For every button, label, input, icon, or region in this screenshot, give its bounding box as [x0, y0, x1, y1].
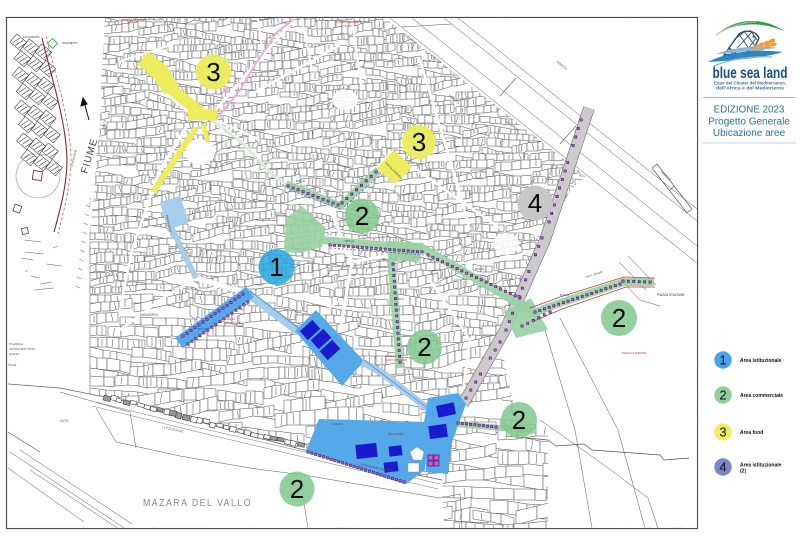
svg-text:SANT ANTONIO: SANT ANTONIO: [385, 358, 408, 362]
svg-text:QUINCI: QUINCI: [9, 352, 20, 356]
svg-text:blue sea land: blue sea land: [713, 65, 788, 82]
svg-text:3: 3: [719, 425, 726, 440]
svg-text:MAZARA DEL VALLO: MAZARA DEL VALLO: [143, 497, 252, 509]
svg-text:2079: 2079: [60, 419, 68, 423]
svg-text:1: 1: [269, 252, 283, 282]
svg-text:BOX 14: BOX 14: [560, 293, 570, 297]
svg-text:CORSO: CORSO: [332, 422, 344, 426]
svg-text:4: 4: [719, 460, 726, 475]
svg-text:2: 2: [417, 332, 431, 362]
svg-text:1: 1: [719, 353, 726, 368]
svg-text:TRAGHETTO: TRAGHETTO: [62, 42, 77, 45]
svg-text:2: 2: [355, 201, 369, 231]
svg-text:Area food: Area food: [740, 430, 763, 436]
svg-text:BOX 22: BOX 22: [475, 267, 485, 271]
svg-text:Progetto Generale: Progetto Generale: [708, 117, 790, 128]
svg-text:2: 2: [290, 474, 304, 504]
svg-text:2: 2: [719, 388, 726, 403]
svg-text:BOX 30: BOX 30: [296, 179, 306, 183]
svg-text:RUGGERO: RUGGERO: [388, 432, 404, 436]
svg-text:PIAZZA STAZIONE: PIAZZA STAZIONE: [657, 293, 685, 297]
svg-text:4: 4: [528, 188, 542, 218]
svg-text:LA CHIAVITA: LA CHIAVITA: [23, 35, 40, 39]
svg-text:PIAZZALE: PIAZZALE: [9, 342, 23, 346]
svg-text:GIOVAN BATTISTA: GIOVAN BATTISTA: [9, 347, 35, 351]
svg-text:BOX 12: BOX 12: [345, 239, 355, 243]
svg-text:PIAZZA QUILICI: PIAZZA QUILICI: [122, 18, 144, 22]
svg-text:MUNICIPIO: MUNICIPIO: [140, 313, 158, 317]
svg-text:dell'Africa e del Medioriente: dell'Africa e del Medioriente: [716, 86, 785, 91]
svg-text:Ubicazione aree: Ubicazione aree: [713, 128, 786, 139]
svg-text:PIAZZA STAZIONE: PIAZZA STAZIONE: [622, 351, 646, 355]
svg-text:Area istituzionale: Area istituzionale: [740, 463, 782, 469]
svg-text:Area istituzionale: Area istituzionale: [740, 358, 782, 364]
svg-text:(2): (2): [740, 469, 746, 475]
svg-text:EDIZIONE 2023: EDIZIONE 2023: [714, 105, 785, 116]
svg-text:3: 3: [412, 127, 426, 157]
svg-text:BOX 18: BOX 18: [198, 327, 208, 331]
svg-text:3: 3: [206, 57, 220, 87]
svg-text:BOX 8: BOX 8: [396, 297, 404, 301]
svg-text:PIAZZA REGINA: PIAZZA REGINA: [336, 20, 359, 24]
svg-text:2: 2: [612, 303, 626, 333]
svg-text:Area commerciale: Area commerciale: [740, 393, 783, 399]
svg-text:SANTISSIMO: SANTISSIMO: [224, 321, 243, 325]
svg-text:2: 2: [512, 405, 526, 435]
svg-text:76109: 76109: [8, 363, 17, 367]
